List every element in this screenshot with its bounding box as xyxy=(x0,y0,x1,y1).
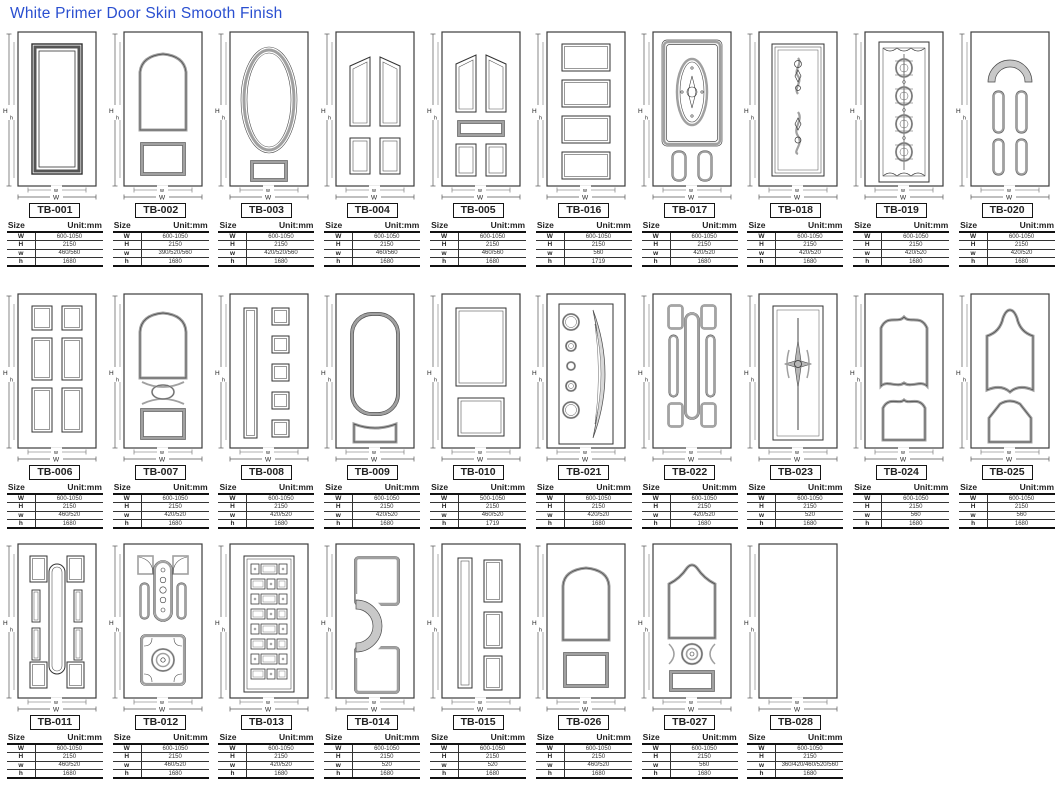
size-key: H xyxy=(536,241,565,250)
size-key: H xyxy=(7,503,36,512)
door-code-label: TB-024 xyxy=(876,465,927,480)
door-drawing-round-arch-two-panel: HhwW xyxy=(320,290,425,464)
door-drawing-arch-circle-panel: HhwW xyxy=(637,540,742,714)
door-card: HhwWTB-007SizeUnit:mmW600-1050H2150w420/… xyxy=(108,290,214,529)
dim-label-H: H xyxy=(532,108,537,115)
size-row: H2150 xyxy=(324,753,420,762)
door-code: TB-004 xyxy=(355,204,390,216)
size-value: 1680 xyxy=(35,258,103,267)
unit-label: Unit:mm xyxy=(808,732,842,742)
size-row: H2150 xyxy=(113,503,209,512)
size-value: 1680 xyxy=(141,258,209,267)
size-table: W600-1050H2150w420/520h1680 xyxy=(853,231,949,267)
door-code: TB-025 xyxy=(990,466,1025,478)
dim-label-h: h xyxy=(963,378,966,384)
size-key: h xyxy=(536,520,565,529)
door-code: TB-009 xyxy=(355,466,390,478)
unit-label: Unit:mm xyxy=(1020,220,1054,230)
size-table-header: SizeUnit:mm xyxy=(7,220,103,231)
size-value: 1680 xyxy=(670,520,738,529)
size-key: w xyxy=(113,511,142,520)
size-key: h xyxy=(959,258,988,267)
door-drawing-five-panel-cathedral: HhwW xyxy=(426,28,531,202)
size-row: w420/520 xyxy=(853,249,949,258)
unit-label: Unit:mm xyxy=(702,220,736,230)
size-row: h1680 xyxy=(642,770,738,779)
size-row: h1680 xyxy=(324,258,420,267)
size-value: 500-1050 xyxy=(459,494,527,503)
size-key: H xyxy=(7,753,36,762)
size-key: h xyxy=(7,770,36,779)
door-code: TB-028 xyxy=(778,716,813,728)
dim-label-h: h xyxy=(857,378,860,384)
size-key: w xyxy=(218,249,247,258)
door-drawing-four-panel-cathedral: HhwW xyxy=(320,28,425,202)
door-code: TB-018 xyxy=(778,204,813,216)
size-value: 2150 xyxy=(141,241,209,250)
door-drawing-fan-top-four-slot: HhwW xyxy=(955,28,1060,202)
dim-label-h: h xyxy=(116,116,119,122)
size-table-header: SizeUnit:mm xyxy=(853,482,949,493)
size-table: W600-1050H2150w420/520h1680 xyxy=(642,493,738,529)
size-value: 2150 xyxy=(882,241,950,250)
door-code: TB-008 xyxy=(249,466,284,478)
unit-label: Unit:mm xyxy=(385,732,419,742)
size-value: 360/420/460/520/560 xyxy=(776,761,844,770)
size-key: w xyxy=(218,761,247,770)
size-key: h xyxy=(536,770,565,779)
door-code-label: TB-026 xyxy=(558,715,609,730)
size-value: 600-1050 xyxy=(564,744,632,753)
size-key: H xyxy=(113,753,142,762)
dim-label-H: H xyxy=(321,370,326,377)
door-drawing-four-horizontal-panel: HhwW xyxy=(531,28,636,202)
dim-label-H: H xyxy=(215,370,220,377)
size-row: H2150 xyxy=(7,503,103,512)
size-value: 460/520 xyxy=(459,511,527,520)
size-table-header: SizeUnit:mm xyxy=(218,220,314,231)
size-label: Size xyxy=(219,732,236,742)
dim-label-H: H xyxy=(956,108,961,115)
size-table-header: SizeUnit:mm xyxy=(430,482,526,493)
door-drawing-circles-crescent: HhwW xyxy=(531,290,636,464)
size-row: w460/520 xyxy=(536,761,632,770)
size-value: 2150 xyxy=(141,753,209,762)
size-row: h1680 xyxy=(113,258,209,267)
size-row: W600-1050 xyxy=(113,494,209,503)
door-card: HhwWTB-025SizeUnit:mmW600-1050H2150w560h… xyxy=(954,290,1060,529)
size-row: W600-1050 xyxy=(430,232,526,241)
size-key: H xyxy=(430,241,459,250)
size-value: 1680 xyxy=(353,770,421,779)
size-key: h xyxy=(113,520,142,529)
size-table: W600-1050H2150w460/520h1680 xyxy=(7,743,103,779)
size-table-header: SizeUnit:mm xyxy=(7,732,103,743)
unit-label: Unit:mm xyxy=(67,482,101,492)
size-value: 600-1050 xyxy=(670,744,738,753)
size-value: 600-1050 xyxy=(353,494,421,503)
size-row: h1719 xyxy=(536,258,632,267)
size-key: h xyxy=(430,770,459,779)
size-table-header: SizeUnit:mm xyxy=(324,220,420,231)
size-label: Size xyxy=(8,732,25,742)
dim-label-H: H xyxy=(850,370,855,377)
size-table: W600-1050H2150w460/560h1680 xyxy=(324,231,420,267)
dim-label-h: h xyxy=(116,378,119,384)
door-drawing-slot-five-square: HhwW xyxy=(214,290,319,464)
size-key: W xyxy=(324,744,353,753)
size-value: 2150 xyxy=(247,753,315,762)
size-key: w xyxy=(642,249,671,258)
size-row: h1680 xyxy=(959,258,1055,267)
size-row: h1680 xyxy=(642,520,738,529)
door-card: HhwWTB-005SizeUnit:mmW600-1050H2150w460/… xyxy=(425,28,531,267)
size-value: 1680 xyxy=(564,520,632,529)
size-table: W600-1050H2150w520h1680 xyxy=(430,743,526,779)
size-key: W xyxy=(747,744,776,753)
size-value: 420/520 xyxy=(988,249,1056,258)
size-table-header: SizeUnit:mm xyxy=(430,220,526,231)
dim-label-h: h xyxy=(222,378,225,384)
size-row: w360/420/460/520/560 xyxy=(747,761,843,770)
dim-label-h: h xyxy=(857,116,860,122)
dim-label-h: h xyxy=(10,116,13,122)
size-row: w560 xyxy=(642,761,738,770)
size-label: Size xyxy=(748,220,765,230)
unit-label: Unit:mm xyxy=(596,482,630,492)
size-value: 560 xyxy=(670,761,738,770)
size-row: H2150 xyxy=(536,241,632,250)
dim-label-h: h xyxy=(751,116,754,122)
size-table-header: SizeUnit:mm xyxy=(113,732,209,743)
size-value: 560 xyxy=(564,249,632,258)
door-card: HhwWTB-018SizeUnit:mmW600-1050H2150w420/… xyxy=(743,28,849,267)
size-value: 460/520 xyxy=(564,761,632,770)
size-row: W600-1050 xyxy=(7,232,103,241)
dim-label-H: H xyxy=(427,370,432,377)
size-label: Size xyxy=(114,732,131,742)
door-code-label: TB-006 xyxy=(29,465,80,480)
door-drawing-slot-three-rect: HhwW xyxy=(426,540,531,714)
size-label: Size xyxy=(643,482,660,492)
size-table: W600-1050H2150w520h1680 xyxy=(324,743,420,779)
dim-label-H: H xyxy=(215,108,220,115)
dim-label-h: h xyxy=(434,378,437,384)
size-value: 600-1050 xyxy=(141,494,209,503)
size-table: W600-1050H2150w460/560h1680 xyxy=(7,231,103,267)
door-drawing-two-panel-flat: HhwW xyxy=(426,290,531,464)
size-row: W600-1050 xyxy=(113,744,209,753)
dim-label-H: H xyxy=(532,370,537,377)
size-value: 1680 xyxy=(776,520,844,529)
size-key: h xyxy=(642,770,671,779)
dim-label-h: h xyxy=(645,116,648,122)
size-row: h1680 xyxy=(324,770,420,779)
size-row: w420/520 xyxy=(642,511,738,520)
catalog-row-3: HhwWTB-011SizeUnit:mmW600-1050H2150w460/… xyxy=(2,540,1060,779)
size-row: W600-1050 xyxy=(536,232,632,241)
size-table: W600-1050H2150w560h1719 xyxy=(536,231,632,267)
size-row: W600-1050 xyxy=(959,494,1055,503)
size-row: H2150 xyxy=(430,753,526,762)
size-value: 390/520/560 xyxy=(141,249,209,258)
size-key: w xyxy=(747,511,776,520)
size-value: 600-1050 xyxy=(459,232,527,241)
size-key: W xyxy=(642,744,671,753)
door-code: TB-013 xyxy=(249,716,284,728)
dim-label-W: W xyxy=(794,707,801,714)
size-table: W600-1050H2150w420/520h1680 xyxy=(747,231,843,267)
dim-label-h: h xyxy=(434,628,437,634)
size-table: W600-1050H2150w420/520h1680 xyxy=(642,231,738,267)
size-table-header: SizeUnit:mm xyxy=(218,732,314,743)
unit-label: Unit:mm xyxy=(596,220,630,230)
size-label: Size xyxy=(114,482,131,492)
size-key: h xyxy=(7,258,36,267)
size-table-header: SizeUnit:mm xyxy=(218,482,314,493)
door-code: TB-027 xyxy=(672,716,707,728)
size-value: 2150 xyxy=(564,753,632,762)
size-label: Size xyxy=(537,220,554,230)
size-value: 420/520/560 xyxy=(247,249,315,258)
size-row: h1680 xyxy=(536,520,632,529)
size-row: H2150 xyxy=(113,241,209,250)
dim-label-W: W xyxy=(53,457,60,464)
size-value: 460/560 xyxy=(353,249,421,258)
size-row: h1680 xyxy=(218,520,314,529)
size-row: h1680 xyxy=(218,770,314,779)
size-value: 600-1050 xyxy=(353,744,421,753)
door-code: TB-017 xyxy=(672,204,707,216)
dim-label-W: W xyxy=(688,457,695,464)
size-row: H2150 xyxy=(324,503,420,512)
size-label: Size xyxy=(325,732,342,742)
size-key: h xyxy=(430,520,459,529)
dim-label-H: H xyxy=(109,370,114,377)
dim-label-H: H xyxy=(744,370,749,377)
size-row: W600-1050 xyxy=(642,232,738,241)
size-value: 600-1050 xyxy=(882,232,950,241)
door-drawing-obround-eight-panel: HhwW xyxy=(2,540,107,714)
size-value: 420/520 xyxy=(670,511,738,520)
size-label: Size xyxy=(219,220,236,230)
dim-label-H: H xyxy=(321,620,326,627)
size-key: W xyxy=(642,232,671,241)
size-key: w xyxy=(7,761,36,770)
dim-label-h: h xyxy=(10,378,13,384)
size-value: 600-1050 xyxy=(353,232,421,241)
door-card: HhwWTB-008SizeUnit:mmW600-1050H2150w420/… xyxy=(214,290,320,529)
size-key: W xyxy=(218,232,247,241)
size-value: 420/520 xyxy=(247,511,315,520)
size-key: W xyxy=(430,494,459,503)
size-row: w420/520/560 xyxy=(218,249,314,258)
size-label: Size xyxy=(431,220,448,230)
door-code: TB-003 xyxy=(249,204,284,216)
size-value: 1680 xyxy=(670,258,738,267)
size-value: 420/520 xyxy=(564,511,632,520)
size-row: W600-1050 xyxy=(747,744,843,753)
dim-label-h: h xyxy=(222,116,225,122)
door-code-label: TB-011 xyxy=(30,715,80,730)
size-value: 600-1050 xyxy=(670,494,738,503)
dim-label-W: W xyxy=(53,707,60,714)
size-table: W600-1050H2150w420/520h1680 xyxy=(536,493,632,529)
size-key: h xyxy=(324,520,353,529)
size-table-header: SizeUnit:mm xyxy=(536,482,632,493)
size-key: W xyxy=(747,494,776,503)
dim-label-H: H xyxy=(3,620,8,627)
size-value: 520 xyxy=(459,761,527,770)
size-row: h1719 xyxy=(430,520,526,529)
size-value: 2150 xyxy=(459,241,527,250)
size-value: 520 xyxy=(776,511,844,520)
door-drawing-ogee-two-panel: HhwW xyxy=(849,290,954,464)
size-row: H2150 xyxy=(959,503,1055,512)
dim-label-h: h xyxy=(539,116,542,122)
door-code: TB-021 xyxy=(566,466,601,478)
door-code: TB-012 xyxy=(143,716,178,728)
size-row: w460/560 xyxy=(324,249,420,258)
size-key: W xyxy=(536,494,565,503)
size-row: h1680 xyxy=(7,770,103,779)
size-label: Size xyxy=(748,732,765,742)
size-table-header: SizeUnit:mm xyxy=(853,220,949,231)
size-key: H xyxy=(218,753,247,762)
size-row: h1680 xyxy=(7,258,103,267)
size-row: w460/560 xyxy=(430,249,526,258)
size-row: W600-1050 xyxy=(218,494,314,503)
dim-label-h: h xyxy=(751,378,754,384)
size-label: Size xyxy=(854,482,871,492)
size-value: 420/520 xyxy=(141,511,209,520)
dim-label-h: h xyxy=(645,628,648,634)
size-key: w xyxy=(324,761,353,770)
unit-label: Unit:mm xyxy=(914,220,948,230)
size-key: h xyxy=(853,258,882,267)
door-drawing-star-center-panel: HhwW xyxy=(743,290,848,464)
size-row: H2150 xyxy=(430,241,526,250)
dim-label-h: h xyxy=(328,116,331,122)
door-code-label: TB-009 xyxy=(347,465,398,480)
door-card: HhwWTB-021SizeUnit:mmW600-1050H2150w420/… xyxy=(531,290,637,529)
catalog-row-1: HhwWTB-001SizeUnit:mmW600-1050H2150w460/… xyxy=(2,28,1060,267)
size-key: W xyxy=(430,232,459,241)
size-key: H xyxy=(642,503,671,512)
door-drawing-ornate-geometric: HhwW xyxy=(108,540,213,714)
size-key: h xyxy=(218,520,247,529)
door-code-label: TB-004 xyxy=(347,203,398,218)
size-table-header: SizeUnit:mm xyxy=(7,482,103,493)
size-table-header: SizeUnit:mm xyxy=(113,220,209,231)
size-label: Size xyxy=(960,220,977,230)
dim-label-W: W xyxy=(688,195,695,202)
unit-label: Unit:mm xyxy=(808,482,842,492)
door-card: HhwWTB-001SizeUnit:mmW600-1050H2150w460/… xyxy=(2,28,108,267)
size-label: Size xyxy=(219,482,236,492)
size-row: w560 xyxy=(853,511,949,520)
door-code: TB-023 xyxy=(778,466,813,478)
size-table-header: SizeUnit:mm xyxy=(324,482,420,493)
door-card: HhwWTB-028SizeUnit:mmW600-1050H2150w360/… xyxy=(743,540,849,779)
size-key: W xyxy=(324,494,353,503)
door-card: HhwWTB-017SizeUnit:mmW600-1050H2150w420/… xyxy=(637,28,743,267)
door-code-label: TB-017 xyxy=(664,203,715,218)
size-label: Size xyxy=(431,482,448,492)
size-key: w xyxy=(536,249,565,258)
size-value: 1680 xyxy=(247,520,315,529)
size-label: Size xyxy=(643,732,660,742)
size-row: h1680 xyxy=(747,770,843,779)
dim-label-H: H xyxy=(744,620,749,627)
size-value: 600-1050 xyxy=(247,744,315,753)
size-key: h xyxy=(218,258,247,267)
unit-label: Unit:mm xyxy=(385,220,419,230)
unit-label: Unit:mm xyxy=(491,220,525,230)
door-drawing-oval-panel: HhwW xyxy=(214,28,319,202)
dim-label-H: H xyxy=(638,370,643,377)
dim-label-H: H xyxy=(3,370,8,377)
size-key: W xyxy=(853,232,882,241)
size-row: W600-1050 xyxy=(7,744,103,753)
door-code-label: TB-028 xyxy=(770,715,821,730)
size-value: 1680 xyxy=(564,770,632,779)
size-value: 460/520 xyxy=(141,761,209,770)
size-key: w xyxy=(536,511,565,520)
door-code-label: TB-001 xyxy=(29,203,80,218)
unit-label: Unit:mm xyxy=(596,732,630,742)
size-key: h xyxy=(218,770,247,779)
size-value: 2150 xyxy=(988,241,1056,250)
size-row: h1680 xyxy=(642,258,738,267)
dim-label-W: W xyxy=(265,195,272,202)
door-card: HhwWTB-015SizeUnit:mmW600-1050H2150w520h… xyxy=(425,540,531,779)
door-drawing-arch-two-panel: HhwW xyxy=(108,28,213,202)
unit-label: Unit:mm xyxy=(67,220,101,230)
catalog-row-2: HhwWTB-006SizeUnit:mmW600-1050H2150w460/… xyxy=(2,290,1060,529)
door-code: TB-019 xyxy=(884,204,919,216)
door-code-label: TB-014 xyxy=(347,715,398,730)
size-key: w xyxy=(7,249,36,258)
size-value: 2150 xyxy=(776,753,844,762)
door-drawing-arch-two-panel-b: HhwW xyxy=(531,540,636,714)
size-key: W xyxy=(113,232,142,241)
size-value: 2150 xyxy=(670,503,738,512)
size-key: W xyxy=(536,744,565,753)
size-row: W600-1050 xyxy=(218,232,314,241)
size-key: H xyxy=(113,503,142,512)
dim-label-h: h xyxy=(751,628,754,634)
door-code: TB-022 xyxy=(672,466,707,478)
size-row: w460/560 xyxy=(7,249,103,258)
size-row: w520 xyxy=(430,761,526,770)
size-key: w xyxy=(218,511,247,520)
size-label: Size xyxy=(325,220,342,230)
size-key: H xyxy=(430,753,459,762)
size-row: W600-1050 xyxy=(536,494,632,503)
size-label: Size xyxy=(114,220,131,230)
dim-label-W: W xyxy=(794,457,801,464)
door-drawing-arch-oval-square: HhwW xyxy=(108,290,213,464)
size-row: W600-1050 xyxy=(536,744,632,753)
size-row: H2150 xyxy=(536,503,632,512)
size-table: W600-1050H2150w560h1680 xyxy=(959,493,1055,529)
size-key: h xyxy=(747,258,776,267)
size-value: 1680 xyxy=(141,520,209,529)
size-table: W600-1050H2150w560h1680 xyxy=(853,493,949,529)
size-row: w560 xyxy=(959,511,1055,520)
size-row: h1680 xyxy=(536,770,632,779)
